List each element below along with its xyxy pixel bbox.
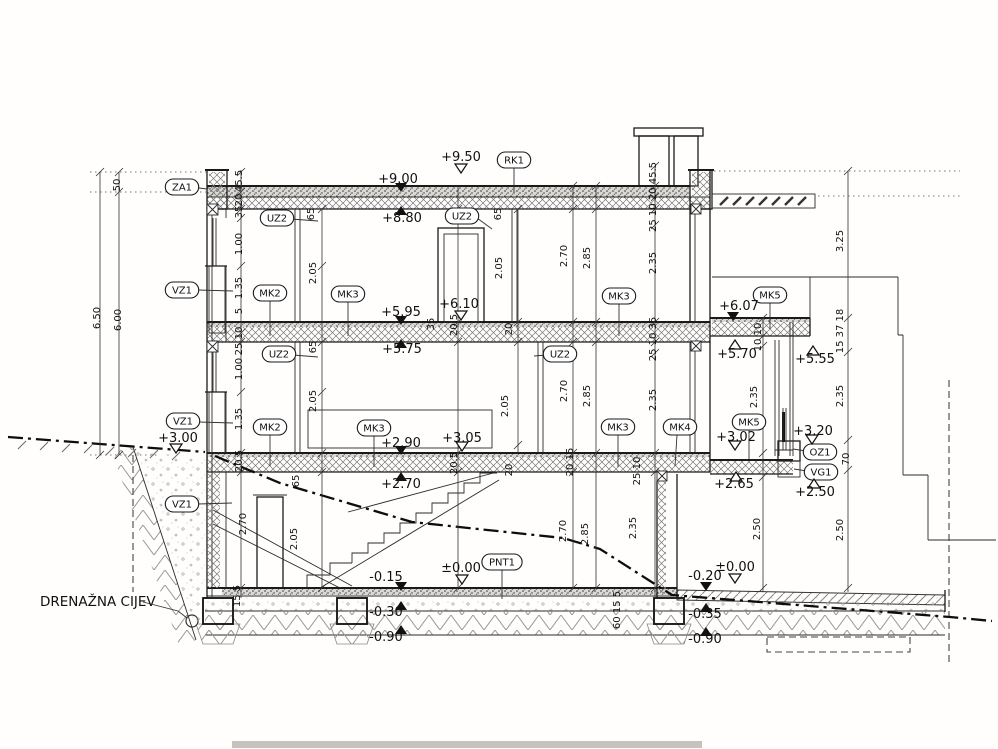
- tag-label: VZ1: [172, 286, 192, 297]
- elevation-value: ±0.00: [715, 560, 755, 575]
- dim-text: 20: [234, 194, 245, 207]
- elevation-value: +3.02: [716, 430, 756, 445]
- dim-text: 2.35: [648, 252, 659, 274]
- elevation-mark: +5.70: [717, 340, 757, 362]
- tag-label: VZ1: [173, 417, 193, 428]
- ground-slab: [205, 588, 945, 635]
- elevation-triangle-icon: [729, 574, 741, 583]
- tag-label: VZ1: [172, 500, 192, 511]
- elevation-value: +5.95: [381, 305, 421, 320]
- dim-text: 65: [291, 475, 302, 488]
- tag-label: MK2: [259, 423, 281, 434]
- elevation-mark: +2.50: [795, 479, 835, 500]
- tag-leader: [199, 188, 207, 189]
- canopy-beam: [712, 194, 815, 208]
- elevation-value: -0.15: [369, 570, 403, 585]
- dim-text: 2.70: [558, 520, 569, 542]
- tag-za1: ZA1: [165, 179, 207, 195]
- dim-text: 2.35: [628, 517, 639, 539]
- elevation-mark: +9.50: [441, 150, 481, 173]
- dim-text: 60 15 5: [612, 591, 623, 629]
- dim-text: 1.00: [234, 358, 245, 380]
- dim-text: 20: [504, 323, 515, 336]
- elevation-mark: +5.75: [382, 339, 422, 357]
- tag-vz1: VZ1: [166, 413, 233, 429]
- tag-label: MK5: [759, 291, 781, 302]
- elevation-mark: +2.65: [714, 472, 754, 492]
- dim-text: 2.05: [494, 257, 505, 279]
- tag-label: MK5: [738, 418, 760, 429]
- dim-text: 25 10: [234, 327, 245, 356]
- dim-text: 6.50: [92, 307, 103, 329]
- tag-leader: [293, 355, 318, 357]
- elevation-mark: ±0.00: [441, 561, 481, 584]
- dim-text: 2.85: [582, 385, 593, 407]
- dim-text: 2.35: [648, 389, 659, 411]
- tag-vz1: VZ1: [165, 282, 233, 298]
- tag-label: UZ2: [452, 212, 472, 223]
- section-drawing: 506.506.0045.520351.001.35525 101.001.35…: [0, 0, 998, 749]
- elevation-value: +6.10: [439, 297, 479, 312]
- tag-label: MK4: [669, 423, 691, 434]
- dim-text: 20: [504, 464, 515, 477]
- left-exterior-wall: [205, 204, 227, 598]
- dim-text: 2.35: [835, 385, 846, 407]
- dim-text: 1.35: [234, 408, 245, 430]
- dim-text: 3.25: [835, 230, 846, 252]
- dim-text: 2.05: [500, 395, 511, 417]
- reference-dotted-lines: [90, 171, 960, 455]
- tag-label: UZ2: [550, 350, 570, 361]
- tag-label: PNT1: [489, 558, 515, 569]
- elevation-value: -0.30: [369, 605, 403, 620]
- dim-text: 70: [841, 453, 852, 466]
- tag-label: UZ2: [267, 214, 287, 225]
- dim-text: 20.5: [449, 452, 460, 474]
- dim-text: 15 37 18: [835, 309, 846, 354]
- dim-text: 35: [234, 206, 245, 219]
- flat-roof: [205, 170, 714, 209]
- dim-text: 45.5: [234, 170, 245, 192]
- elevation-value: +6.07: [719, 299, 759, 314]
- elevation-value: +3.05: [442, 431, 482, 446]
- tag-label: MK2: [259, 289, 281, 300]
- dim-text: 2.50: [752, 518, 763, 540]
- tag-vg1: VG1: [794, 464, 838, 480]
- dim-text: 20.5: [234, 450, 245, 472]
- dim-text: 2.50: [835, 519, 846, 541]
- dim-text: 25 10: [632, 457, 643, 486]
- elevation-value: +5.75: [382, 342, 422, 357]
- tag-label: MK3: [337, 290, 359, 301]
- tag-label: MK3: [607, 423, 629, 434]
- elevation-value: ±0.00: [441, 561, 481, 576]
- dim-text: 20 15: [565, 448, 576, 477]
- elevation-marks: +9.50+9.00+8.80+6.10+5.95+5.75+6.07+5.70…: [158, 150, 835, 647]
- dim-text: 2.85: [582, 247, 593, 269]
- elevation-mark: +2.70: [381, 472, 421, 492]
- dim-text: 65: [493, 208, 504, 221]
- tag-leader: [199, 422, 233, 423]
- dim-text: 35: [426, 318, 437, 331]
- drain-callout-text: DRENAŽNA CIJEV: [40, 592, 156, 610]
- tag-label: MK3: [608, 292, 630, 303]
- tag-label: VG1: [811, 468, 832, 479]
- elevation-value: +2.65: [714, 477, 754, 492]
- elevation-mark: +3.02: [716, 430, 756, 450]
- dim-text: 2.35: [749, 386, 760, 408]
- dim-text: 25 10 20 45.5: [648, 162, 659, 232]
- elevation-mark: +5.55: [795, 346, 835, 367]
- elevation-value: +9.50: [441, 150, 481, 165]
- elevation-value: -0.90: [688, 632, 722, 647]
- elevation-value: +5.70: [717, 347, 757, 362]
- elevation-value: +5.55: [795, 352, 835, 367]
- tag-label: UZ2: [269, 350, 289, 361]
- elevation-value: +2.70: [381, 477, 421, 492]
- tag-uz2: UZ2: [445, 208, 492, 229]
- dim-text: 2.85: [580, 523, 591, 545]
- dim-text: 20.5: [449, 314, 460, 336]
- tag-uz2: UZ2: [534, 346, 577, 362]
- dim-text: 2.70: [559, 380, 570, 402]
- elevation-mark: +3.00: [158, 431, 198, 453]
- dim-text: 25 10 35: [648, 317, 659, 362]
- dim-text: 1.00: [234, 233, 245, 255]
- elevation-value: -0.35: [688, 607, 722, 622]
- tag-label: ZA1: [172, 183, 192, 194]
- dim-text: 2.05: [289, 528, 300, 550]
- elevation-value: +8.80: [382, 211, 422, 226]
- dim-text: 5: [234, 308, 245, 314]
- dim-text: 65: [308, 341, 319, 354]
- elevation-value: -0.90: [369, 630, 403, 645]
- tag-label: RK1: [504, 156, 524, 167]
- dim-text: 2.05: [308, 262, 319, 284]
- elevation-value: +2.50: [795, 485, 835, 500]
- tag-label: OZ1: [809, 448, 830, 459]
- dim-text: 50: [112, 179, 123, 192]
- elevation-value: +9.00: [378, 172, 418, 187]
- dim-text: 65: [306, 208, 317, 221]
- elevation-value: +3.00: [158, 431, 198, 446]
- elevation-value: +2.90: [381, 436, 421, 451]
- scan-edge-artifact: [232, 741, 702, 748]
- dim-text: 6.00: [113, 309, 124, 331]
- walls-and-openings: [253, 170, 710, 598]
- dim-text: 2.70: [559, 245, 570, 267]
- dim-text: 2.05: [308, 390, 319, 412]
- elevation-triangle-icon: [455, 164, 467, 173]
- elevation-mark: +6.10: [439, 297, 479, 320]
- dim-text: 2.70: [238, 513, 249, 535]
- tag-leader: [198, 290, 233, 291]
- dim-text: 15 5: [232, 585, 243, 607]
- tag-label: MK3: [363, 424, 385, 435]
- dim-text: 1.35: [234, 277, 245, 299]
- elevation-value: +3.20: [793, 424, 833, 439]
- drawing-page: 506.506.0045.520351.001.35525 101.001.35…: [0, 0, 998, 749]
